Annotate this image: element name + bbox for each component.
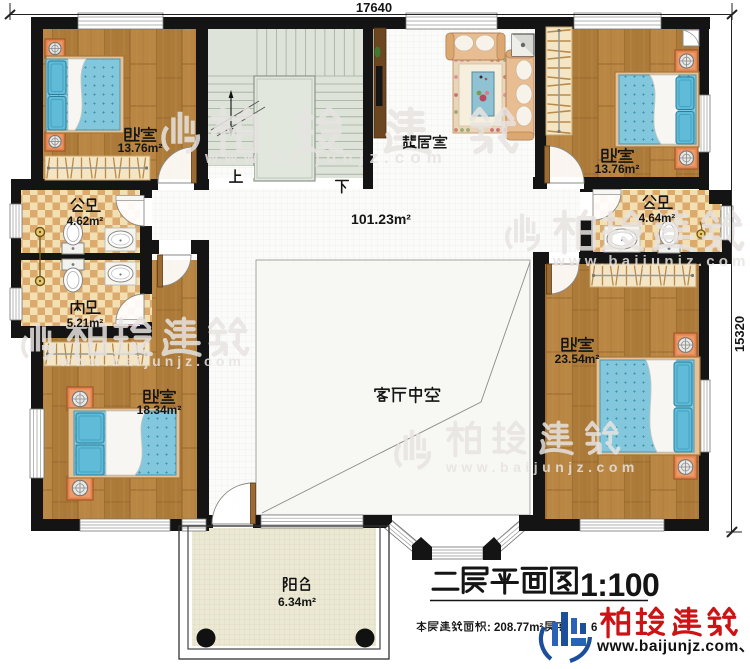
svg-text:13.76m²: 13.76m² xyxy=(118,141,163,155)
svg-text:www.baijunjz.com、: www.baijunjz.com、 xyxy=(596,638,750,655)
svg-text:www.baijunjz.com: www.baijunjz.com xyxy=(445,459,639,475)
svg-text:www.baijunjz.com: www.baijunjz.com xyxy=(204,148,448,167)
svg-text:www.baijunjz.com: www.baijunjz.com xyxy=(59,353,245,369)
svg-text:4.64m²: 4.64m² xyxy=(639,213,676,225)
svg-text:www.baijunjz.com: www.baijunjz.com xyxy=(552,253,750,270)
svg-text:15320: 15320 xyxy=(732,316,747,352)
svg-text:17640: 17640 xyxy=(356,0,392,15)
svg-text:6.34m²: 6.34m² xyxy=(278,595,316,609)
svg-text:1:100: 1:100 xyxy=(580,567,659,603)
svg-text:101.23m²: 101.23m² xyxy=(351,211,411,227)
svg-text:23.54m²: 23.54m² xyxy=(555,352,600,366)
svg-text:13.76m²: 13.76m² xyxy=(595,162,640,176)
svg-text:4.62m²: 4.62m² xyxy=(67,216,104,228)
svg-text:18.34m²: 18.34m² xyxy=(137,403,182,417)
svg-text:5.21m²: 5.21m² xyxy=(67,318,104,330)
svg-text:: 208.77m²: : 208.77m² xyxy=(487,622,543,634)
svg-text:6: 6 xyxy=(591,622,597,634)
